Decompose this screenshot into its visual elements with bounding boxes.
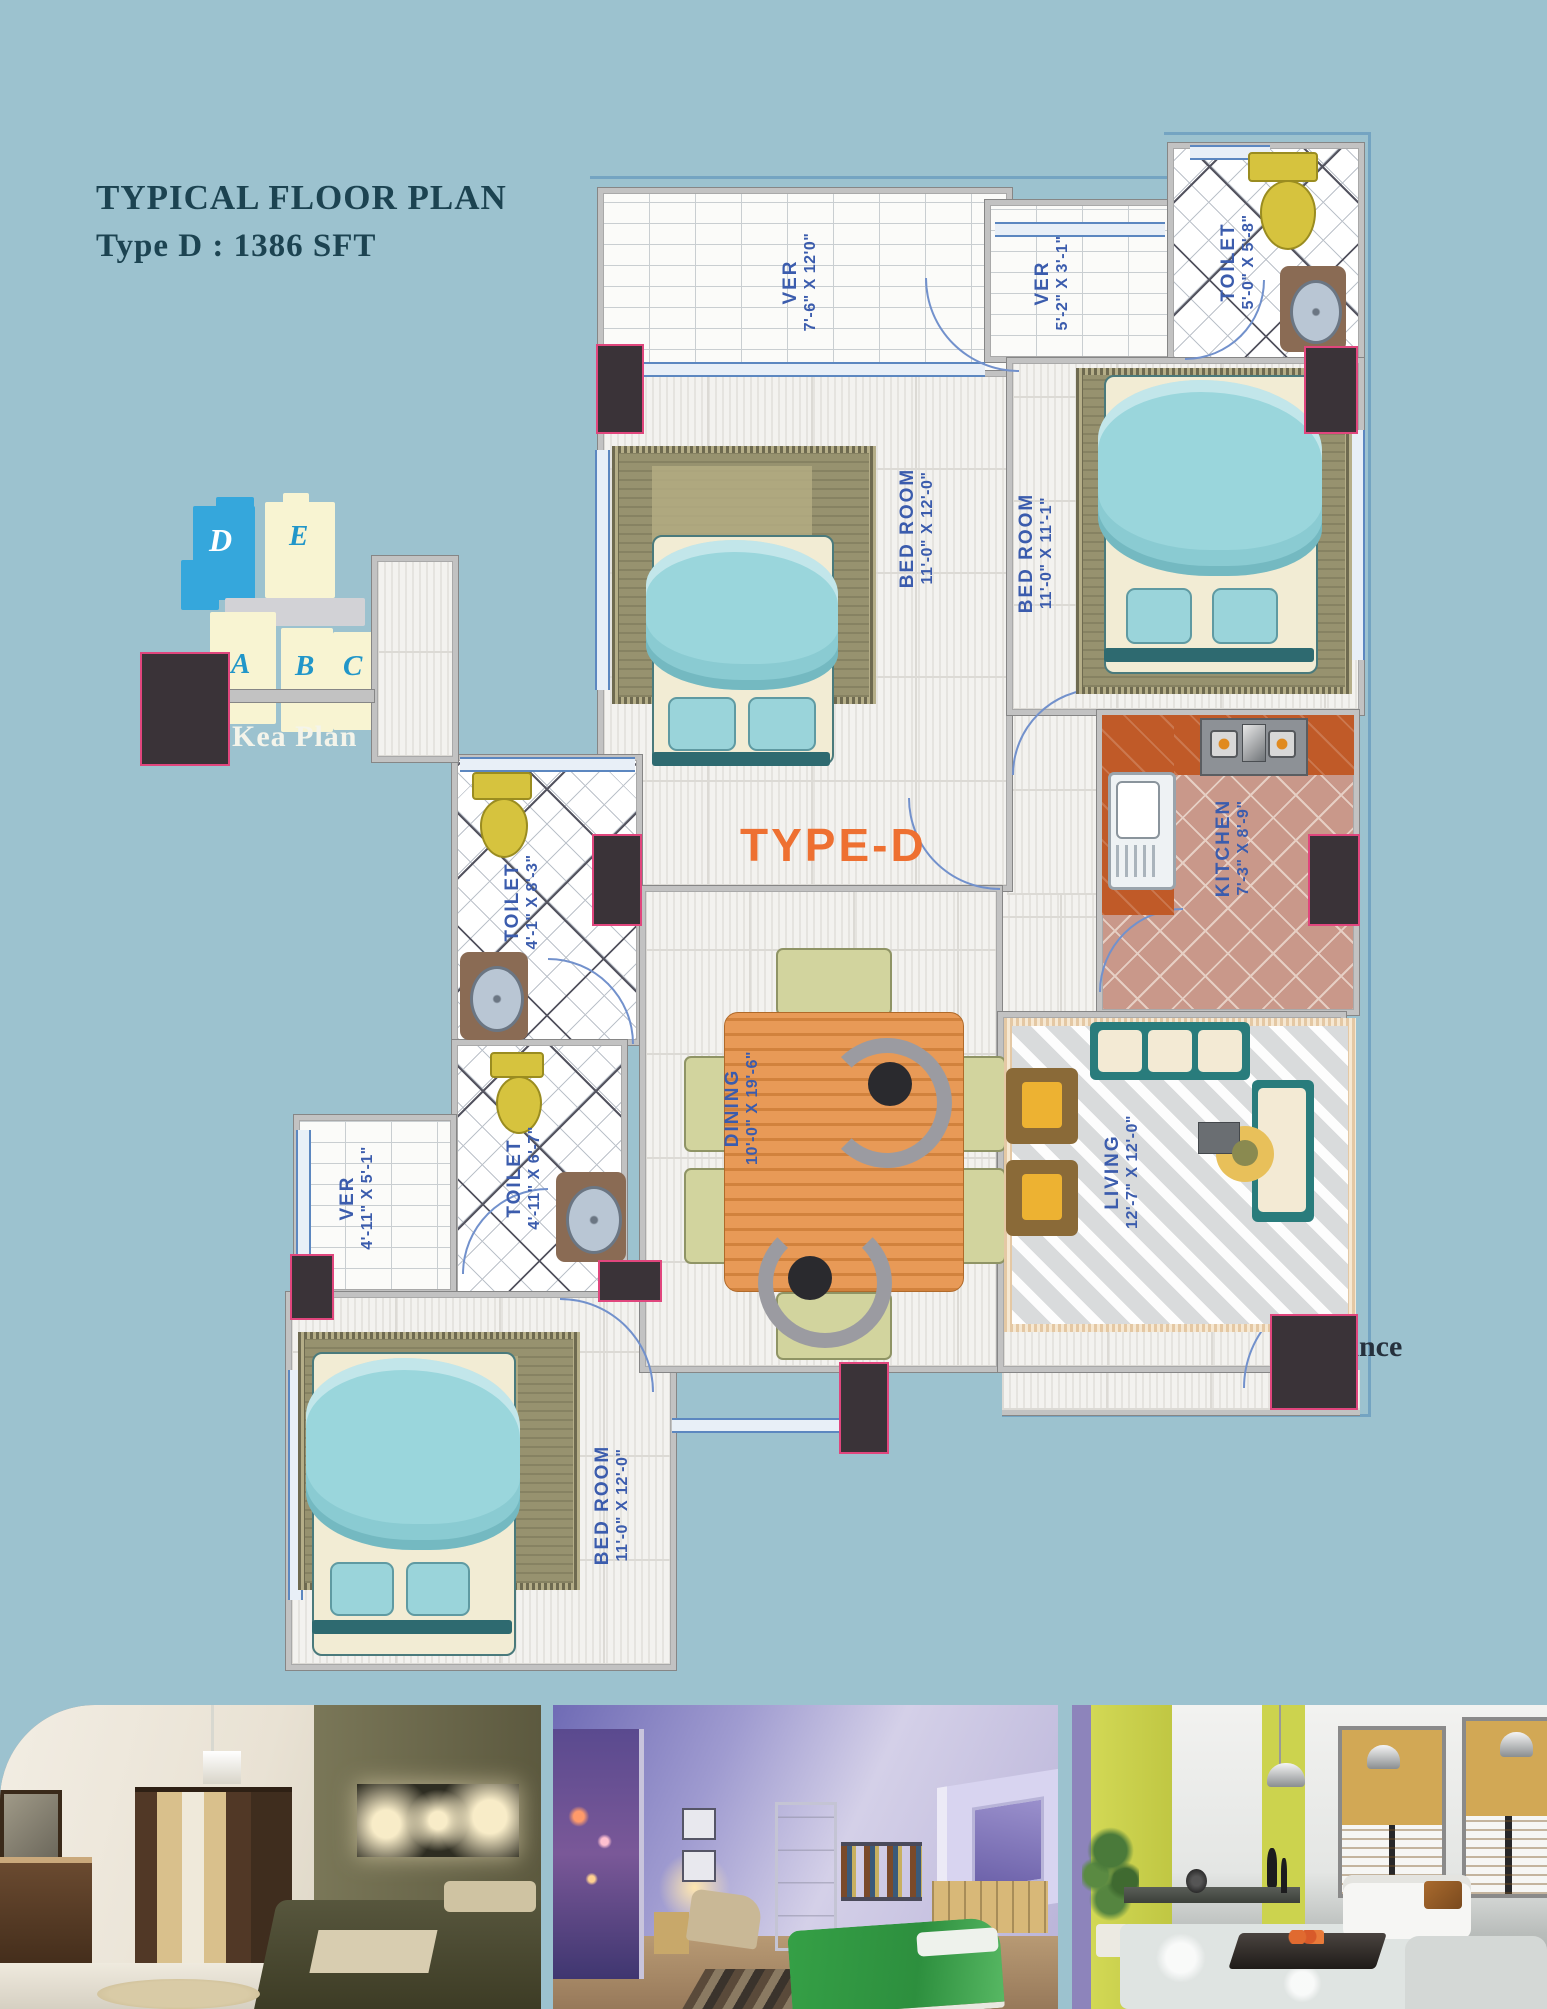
photo2-city-window	[553, 1729, 644, 1978]
bed-blanket	[306, 1358, 520, 1550]
keyplan-label: Kea Plan	[232, 720, 358, 754]
room-name: VER	[337, 1146, 359, 1250]
photo-bedroom-render	[0, 1705, 541, 2009]
room-dim: 4'-1" X 8'-3"	[524, 854, 542, 949]
photo3-lime-column	[1262, 1705, 1305, 1948]
label-verandah-right: VER 5'-2" X 3'-1"	[1032, 235, 1072, 330]
column	[596, 344, 644, 434]
label-bedroom-right: BED ROOM 11'-0" X 11'-1"	[1016, 493, 1056, 614]
photo3-dome-lamp	[1367, 1745, 1400, 1769]
photo1-candle-art	[357, 1784, 519, 1857]
window	[1350, 430, 1365, 660]
bed-pillow	[668, 697, 736, 751]
living-armchair	[1006, 1160, 1078, 1236]
bed-pillow	[748, 697, 816, 751]
bed-blanket	[646, 540, 838, 690]
boundary-line	[1164, 132, 1368, 135]
photo1-bed-throw	[309, 1930, 437, 1973]
sink-drainboard	[1116, 845, 1160, 877]
photo3-pendant-cord	[1279, 1705, 1281, 1766]
room-dim: 7'-3" X 8'-9"	[1235, 799, 1253, 897]
room-dim: 12'-7" X 12'-0"	[1124, 1115, 1142, 1229]
title-line-2: Type D : 1386 SFT	[96, 228, 507, 265]
armchair-seat	[1022, 1082, 1062, 1128]
keyplan-block-e-tab	[283, 493, 309, 505]
keyplan-letter-a: A	[231, 648, 250, 681]
column	[839, 1362, 889, 1454]
room-nook	[372, 556, 458, 762]
column	[1308, 834, 1360, 926]
burner	[1210, 730, 1238, 758]
window	[640, 362, 985, 377]
wall-fragment	[224, 690, 374, 702]
keyplan-letter-d: D	[209, 522, 232, 559]
burner	[1268, 730, 1296, 758]
room-dim: 11'-0" X 11'-1"	[1038, 493, 1056, 614]
column	[290, 1254, 334, 1320]
bed-pillow	[1126, 588, 1192, 644]
bed-pillow	[330, 1562, 394, 1616]
toilet-tank	[472, 772, 532, 800]
photo2-side-table	[654, 1912, 689, 1955]
label-kitchen: KITCHEN 7'-3" X 8'-9"	[1213, 799, 1253, 897]
label-toilet-mid: TOILET 4'-1" X 8'-3"	[502, 854, 542, 949]
boundary-line	[1368, 132, 1371, 1416]
column	[140, 652, 230, 766]
photo2-wall-art	[682, 1808, 716, 1839]
keyplan-letter-e: E	[289, 520, 308, 553]
bed-headboard	[1104, 648, 1314, 662]
photo3-dome-lamp	[1500, 1732, 1533, 1756]
toilet-tank	[490, 1052, 544, 1078]
label-verandah-left: VER 4'-11" X 5'-1"	[337, 1146, 377, 1250]
living-armchair	[1006, 1068, 1078, 1144]
photo3-console	[1124, 1887, 1300, 1902]
photo1-mirror	[0, 1790, 62, 1865]
sofa-cushion	[1198, 1030, 1242, 1072]
label-toilet-top: TOILET 5'-0" X 5'-8"	[1218, 214, 1258, 309]
room-dim: 10'-0" X 19'-6"	[744, 1051, 762, 1165]
label-bedroom-bottom: BED ROOM 11'-0" X 12'-0"	[592, 1445, 632, 1566]
room-name: KITCHEN	[1213, 799, 1235, 897]
room-name: VER	[1032, 235, 1054, 330]
room-dim: 11'-0" X 12'-0"	[614, 1445, 632, 1566]
room-name: VER	[780, 233, 802, 332]
keyplan-letter-c: C	[343, 650, 362, 683]
boundary-line	[590, 176, 1178, 179]
label-bedroom-top: BED ROOM 11'-0" X 12'-0"	[897, 468, 937, 589]
photo1-pendant-lamp	[203, 1751, 241, 1784]
photo-attic-bedroom-render	[553, 1705, 1058, 2009]
window	[460, 757, 635, 772]
stove	[1200, 718, 1308, 776]
room-dim: 11'-0" X 12'-0"	[919, 468, 937, 589]
room-name: LIVING	[1102, 1115, 1124, 1229]
column	[592, 834, 642, 926]
room-dim: 5'-2" X 3'-1"	[1054, 235, 1072, 330]
title-line-1: TYPICAL FLOOR PLAN	[96, 178, 507, 218]
window	[995, 222, 1165, 237]
room-name: BED ROOM	[592, 1445, 614, 1566]
room-dim: 5'-0" X 5'-8"	[1240, 214, 1258, 309]
armchair-seat	[1022, 1174, 1062, 1220]
photo2-dormer-window	[972, 1797, 1044, 1893]
label-living: LIVING 12'-7" X 12'-0"	[1102, 1115, 1142, 1229]
window	[672, 1418, 842, 1433]
photo3-plant	[1082, 1814, 1139, 1936]
living-sofa-top	[1090, 1022, 1250, 1080]
label-dining: DINING 10'-0" X 19'-6"	[722, 1051, 762, 1165]
window	[595, 450, 610, 690]
toilet-tank	[1248, 152, 1318, 182]
person-head	[868, 1062, 912, 1106]
room-name: TOILET	[1218, 214, 1240, 309]
bed-blanket	[1098, 380, 1322, 576]
column	[598, 1260, 662, 1302]
column	[1304, 346, 1358, 434]
photo1-pendant-cord	[211, 1705, 214, 1754]
bed-headboard	[652, 752, 830, 766]
keyplan-block-d-tab	[216, 497, 254, 509]
room-dim: 4'-11" X 5'-1"	[359, 1146, 377, 1250]
room-name: DINING	[722, 1051, 744, 1165]
wash-basin	[470, 966, 524, 1032]
keyplan-letter-b: B	[295, 650, 314, 683]
sink-basin	[1116, 781, 1160, 839]
bed-headboard	[312, 1620, 512, 1634]
pot	[1242, 724, 1266, 762]
page-title: TYPICAL FLOOR PLAN Type D : 1386 SFT	[96, 178, 507, 265]
photo1-pillows	[444, 1881, 536, 1911]
room-name: TOILET	[504, 1126, 526, 1230]
photo3-vases	[1267, 1848, 1277, 1888]
photo3-fruit-bowl	[1286, 1930, 1324, 1944]
dining-chair	[776, 948, 892, 1016]
person-head	[788, 1256, 832, 1300]
sofa-cushion	[1098, 1030, 1142, 1072]
label-verandah-top: VER 7'-6" X 12'0"	[780, 233, 820, 332]
photo2-bookshelf	[841, 1842, 922, 1902]
room-name: BED ROOM	[1016, 493, 1038, 614]
room-dim: 7'-6" X 12'0"	[802, 233, 820, 332]
photo3-accent-pillow	[1424, 1881, 1462, 1908]
wash-basin	[566, 1186, 622, 1254]
unit-type-label: TYPE-D	[740, 818, 927, 872]
person-head	[1232, 1140, 1258, 1166]
sofa-cushion	[1148, 1030, 1192, 1072]
photo-living-room-render	[1072, 1705, 1547, 2009]
room-name: BED ROOM	[897, 468, 919, 589]
bed-pillow	[406, 1562, 470, 1616]
brochure-page: { "title": { "line1": "TYPICAL FLOOR PLA…	[0, 0, 1547, 2009]
kitchen-sink	[1108, 772, 1176, 890]
label-toilet-low: TOILET 4'-11" X 6'-7"	[504, 1126, 544, 1230]
keyplan-block-d-ext	[181, 560, 219, 610]
photo3-sofa-gray	[1405, 1936, 1547, 2009]
room-dim: 4'-11" X 6'-7"	[526, 1126, 544, 1230]
room-name: TOILET	[502, 854, 524, 949]
bed-pillow	[1212, 588, 1278, 644]
entrance-column	[1270, 1314, 1358, 1410]
wash-basin	[1290, 280, 1342, 344]
photo1-round-rug	[97, 1979, 259, 2009]
